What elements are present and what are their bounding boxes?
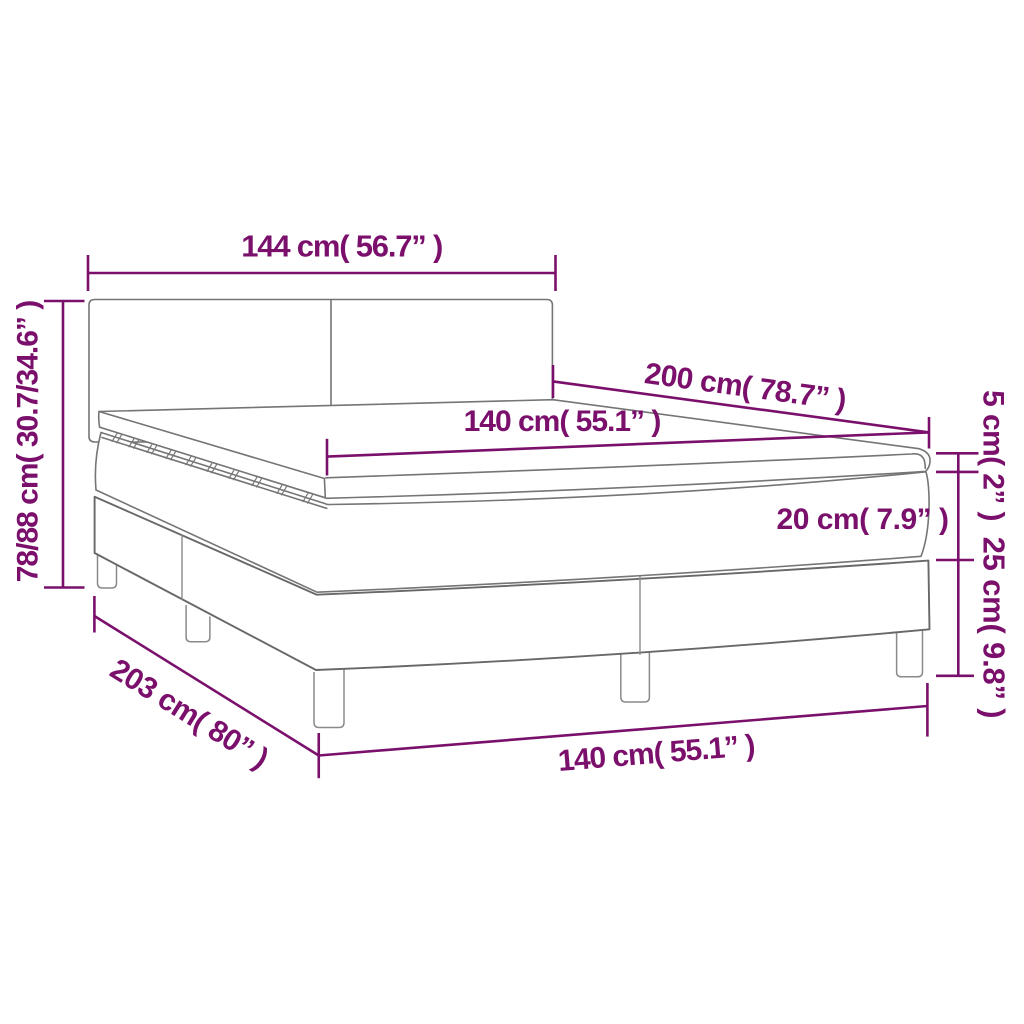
svg-text:5 cm( 2” ): 5 cm( 2” ) — [977, 390, 1010, 521]
svg-text:140 cm( 55.1” ): 140 cm( 55.1” ) — [464, 405, 661, 438]
svg-text:144 cm( 56.7” ): 144 cm( 56.7” ) — [241, 229, 442, 264]
svg-text:20 cm( 7.9” ): 20 cm( 7.9” ) — [777, 503, 949, 536]
svg-text:25 cm( 9.8” ): 25 cm( 9.8” ) — [977, 537, 1012, 719]
svg-text:78/88 cm( 30.7/34.6” ): 78/88 cm( 30.7/34.6” ) — [12, 301, 45, 583]
